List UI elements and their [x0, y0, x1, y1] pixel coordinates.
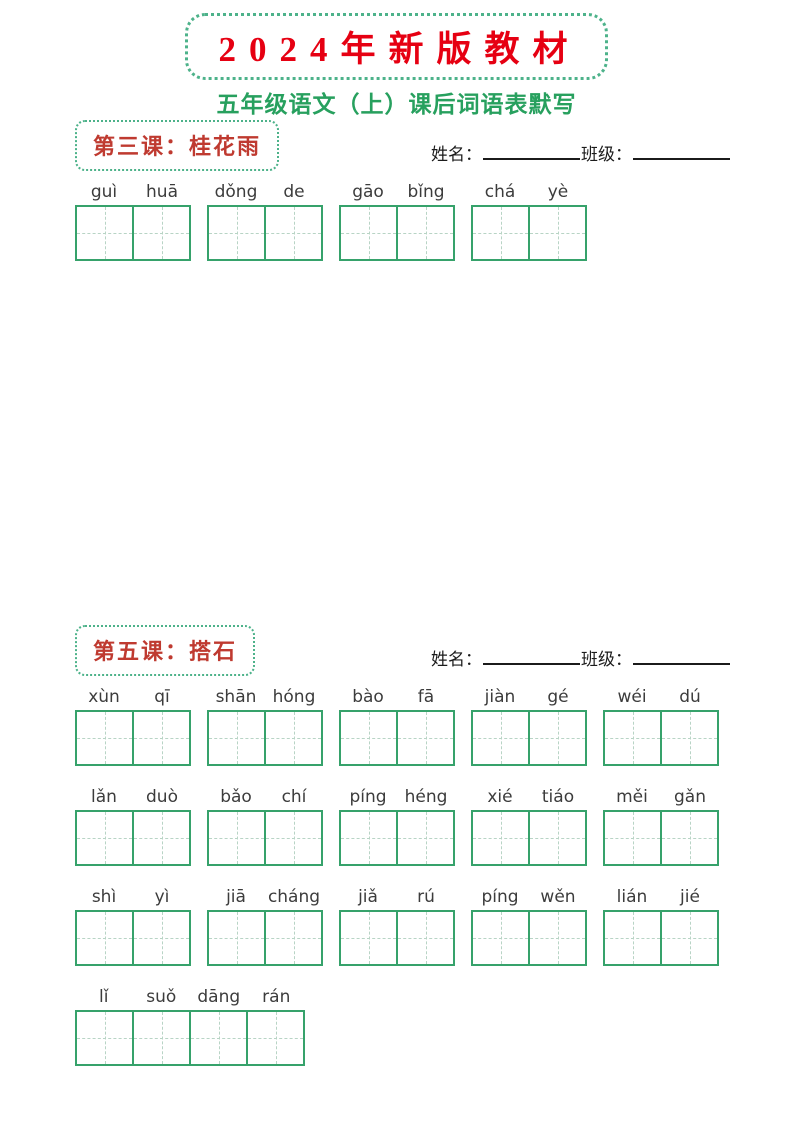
pinyin-syllable: gǎn	[661, 787, 719, 807]
pinyin-syllable: bào	[339, 687, 397, 707]
writing-grid	[603, 910, 719, 966]
writing-cell[interactable]	[528, 712, 585, 764]
writing-cell[interactable]	[660, 812, 717, 864]
pinyin-row: cháyè	[471, 182, 587, 202]
writing-cell[interactable]	[396, 812, 453, 864]
lesson-3-header: 第三课：桂花雨 姓名：班级：	[75, 120, 731, 171]
pinyin-row: bàofā	[339, 687, 455, 707]
word-block: lǎnduò	[75, 787, 191, 866]
pinyin-syllable: wěn	[529, 887, 587, 907]
writing-cell[interactable]	[264, 812, 321, 864]
lesson-5-header: 第五课：搭石 姓名：班级：	[75, 625, 731, 676]
worksheet-page: 2024年新版教材 五年级语文（上）课后词语表默写 第三课：桂花雨 姓名：班级：…	[0, 0, 793, 1122]
name-class-fields: 姓名：班级：	[431, 140, 731, 171]
pinyin-row: wéidú	[603, 687, 719, 707]
pinyin-syllable: dǒng	[207, 182, 265, 202]
word-row: lǐsuǒdāngrán	[75, 987, 731, 1066]
word-block: xùnqī	[75, 687, 191, 766]
word-block: xiétiáo	[471, 787, 587, 866]
word-block: jiǎrú	[339, 887, 455, 966]
writing-cell[interactable]	[132, 712, 189, 764]
pinyin-syllable: duò	[133, 787, 191, 807]
pinyin-syllable: gāo	[339, 182, 397, 202]
pinyin-syllable: qī	[133, 687, 191, 707]
writing-cell[interactable]	[132, 812, 189, 864]
pinyin-syllable: chí	[265, 787, 323, 807]
word-block: lǐsuǒdāngrán	[75, 987, 305, 1066]
writing-cell[interactable]	[77, 207, 132, 259]
pinyin-row: pínghéng	[339, 787, 455, 807]
pinyin-syllable: yì	[133, 887, 191, 907]
writing-grid	[471, 810, 587, 866]
pinyin-syllable: jié	[661, 887, 719, 907]
writing-cell[interactable]	[341, 712, 396, 764]
lesson-3-section: 第三课：桂花雨 姓名：班级： guìhuādǒngdegāobǐngcháyè	[75, 120, 731, 261]
word-row: lǎnduòbǎochípínghéngxiétiáoměigǎn	[75, 787, 731, 866]
pinyin-syllable: píng	[471, 887, 529, 907]
writing-cell[interactable]	[473, 207, 528, 259]
pinyin-row: píngwěn	[471, 887, 587, 907]
pinyin-syllable: jiàn	[471, 687, 529, 707]
word-rows-container: xùnqīshānhóngbàofājiàngéwéidúlǎnduòbǎoch…	[75, 687, 731, 1066]
word-block: shìyì	[75, 887, 191, 966]
pinyin-row: xùnqī	[75, 687, 191, 707]
writing-grid	[339, 710, 455, 766]
name-blank[interactable]	[483, 646, 580, 665]
word-block: bǎochí	[207, 787, 323, 866]
word-block: jiàngé	[471, 687, 587, 766]
writing-grid	[207, 910, 323, 966]
writing-cell[interactable]	[77, 1012, 132, 1064]
writing-cell[interactable]	[528, 912, 585, 964]
writing-cell[interactable]	[341, 207, 396, 259]
lesson-heading: 第五课：搭石	[93, 639, 237, 664]
writing-cell[interactable]	[473, 912, 528, 964]
word-block: pínghéng	[339, 787, 455, 866]
pinyin-syllable: suǒ	[133, 987, 191, 1007]
writing-grid	[75, 1010, 305, 1066]
writing-grid	[339, 205, 455, 261]
writing-cell[interactable]	[264, 712, 321, 764]
pinyin-syllable: bǎo	[207, 787, 265, 807]
pinyin-row: liánjié	[603, 887, 719, 907]
word-block: dǒngde	[207, 182, 323, 261]
writing-cell[interactable]	[605, 812, 660, 864]
title-text: 2024年新版教材	[212, 21, 580, 72]
word-block: píngwěn	[471, 887, 587, 966]
writing-grid	[75, 810, 191, 866]
word-block: gāobǐng	[339, 182, 455, 261]
writing-cell[interactable]	[528, 207, 585, 259]
word-block: guìhuā	[75, 182, 191, 261]
pinyin-row: jiǎrú	[339, 887, 455, 907]
word-rows-container: guìhuādǒngdegāobǐngcháyè	[75, 182, 731, 261]
writing-cell[interactable]	[209, 812, 264, 864]
name-blank[interactable]	[483, 141, 580, 160]
pinyin-syllable: rán	[248, 987, 306, 1007]
pinyin-row: jiācháng	[207, 887, 323, 907]
pinyin-row: gāobǐng	[339, 182, 455, 202]
writing-cell[interactable]	[77, 712, 132, 764]
pinyin-row: lǎnduò	[75, 787, 191, 807]
writing-grid	[75, 910, 191, 966]
name-label: 姓名：	[431, 650, 482, 669]
pinyin-syllable: rú	[397, 887, 455, 907]
writing-cell[interactable]	[396, 912, 453, 964]
writing-grid	[339, 910, 455, 966]
word-row: shìyìjiāchángjiǎrúpíngwěnliánjié	[75, 887, 731, 966]
word-row: guìhuādǒngdegāobǐngcháyè	[75, 182, 731, 261]
writing-grid	[603, 810, 719, 866]
pinyin-syllable: tiáo	[529, 787, 587, 807]
word-block: wéidú	[603, 687, 719, 766]
pinyin-row: xiétiáo	[471, 787, 587, 807]
pinyin-syllable: jiā	[207, 887, 265, 907]
writing-cell[interactable]	[77, 912, 132, 964]
pinyin-syllable: shān	[207, 687, 265, 707]
pinyin-syllable: xùn	[75, 687, 133, 707]
writing-cell[interactable]	[264, 912, 321, 964]
writing-cell[interactable]	[396, 712, 453, 764]
pinyin-row: shānhóng	[207, 687, 323, 707]
class-blank[interactable]	[633, 646, 730, 665]
writing-cell[interactable]	[209, 912, 264, 964]
word-block: bàofā	[339, 687, 455, 766]
pinyin-syllable: guì	[75, 182, 133, 202]
lesson-heading-box: 第五课：搭石	[75, 625, 255, 676]
writing-grid	[75, 205, 191, 261]
writing-grid	[207, 205, 323, 261]
writing-cell[interactable]	[132, 1012, 189, 1064]
pinyin-syllable: héng	[397, 787, 455, 807]
word-block: shānhóng	[207, 687, 323, 766]
writing-cell[interactable]	[473, 812, 528, 864]
writing-cell[interactable]	[264, 207, 321, 259]
writing-cell[interactable]	[605, 712, 660, 764]
lesson-heading: 第三课：桂花雨	[93, 134, 261, 159]
pinyin-row: shìyì	[75, 887, 191, 907]
writing-cell[interactable]	[132, 207, 189, 259]
name-label: 姓名：	[431, 145, 482, 164]
pinyin-syllable: hóng	[265, 687, 323, 707]
pinyin-syllable: gé	[529, 687, 587, 707]
writing-cell[interactable]	[209, 712, 264, 764]
pinyin-syllable: huā	[133, 182, 191, 202]
pinyin-row: lǐsuǒdāngrán	[75, 987, 305, 1007]
title-banner: 2024年新版教材	[185, 13, 607, 80]
pinyin-syllable: jiǎ	[339, 887, 397, 907]
writing-grid	[207, 710, 323, 766]
pinyin-syllable: dāng	[190, 987, 248, 1007]
class-blank[interactable]	[633, 141, 730, 160]
pinyin-syllable: xié	[471, 787, 529, 807]
pinyin-syllable: měi	[603, 787, 661, 807]
pinyin-syllable: lǐ	[75, 987, 133, 1007]
pinyin-syllable: de	[265, 182, 323, 202]
writing-cell[interactable]	[246, 1012, 303, 1064]
writing-grid	[339, 810, 455, 866]
writing-grid	[471, 710, 587, 766]
writing-grid	[471, 205, 587, 261]
writing-cell[interactable]	[660, 912, 717, 964]
name-class-fields: 姓名：班级：	[431, 645, 731, 676]
pinyin-syllable: lǎn	[75, 787, 133, 807]
pinyin-syllable: lián	[603, 887, 661, 907]
word-block: měigǎn	[603, 787, 719, 866]
word-block: liánjié	[603, 887, 719, 966]
writing-grid	[471, 910, 587, 966]
pinyin-syllable: bǐng	[397, 182, 455, 202]
class-label: 班级：	[581, 650, 632, 669]
pinyin-syllable: yè	[529, 182, 587, 202]
pinyin-syllable: píng	[339, 787, 397, 807]
writing-grid	[603, 710, 719, 766]
pinyin-syllable: dú	[661, 687, 719, 707]
pinyin-syllable: wéi	[603, 687, 661, 707]
pinyin-row: jiàngé	[471, 687, 587, 707]
lesson-heading-box: 第三课：桂花雨	[75, 120, 279, 171]
pinyin-row: guìhuā	[75, 182, 191, 202]
pinyin-row: dǒngde	[207, 182, 323, 202]
writing-cell[interactable]	[77, 812, 132, 864]
writing-grid	[207, 810, 323, 866]
writing-grid	[75, 710, 191, 766]
pinyin-row: měigǎn	[603, 787, 719, 807]
subtitle: 五年级语文（上）课后词语表默写	[0, 85, 793, 119]
writing-cell[interactable]	[660, 712, 717, 764]
pinyin-syllable: fā	[397, 687, 455, 707]
lesson-5-section: 第五课：搭石 姓名：班级： xùnqīshānhóngbàofājiàngéwé…	[75, 625, 731, 1066]
writing-cell[interactable]	[209, 207, 264, 259]
writing-cell[interactable]	[341, 912, 396, 964]
writing-cell[interactable]	[473, 712, 528, 764]
class-label: 班级：	[581, 145, 632, 164]
writing-cell[interactable]	[189, 1012, 246, 1064]
writing-cell[interactable]	[341, 812, 396, 864]
writing-cell[interactable]	[528, 812, 585, 864]
pinyin-syllable: cháng	[265, 887, 323, 907]
writing-cell[interactable]	[605, 912, 660, 964]
word-block: jiācháng	[207, 887, 323, 966]
pinyin-row: bǎochí	[207, 787, 323, 807]
word-row: xùnqīshānhóngbàofājiàngéwéidú	[75, 687, 731, 766]
writing-cell[interactable]	[132, 912, 189, 964]
writing-cell[interactable]	[396, 207, 453, 259]
word-block: cháyè	[471, 182, 587, 261]
pinyin-syllable: chá	[471, 182, 529, 202]
pinyin-syllable: shì	[75, 887, 133, 907]
